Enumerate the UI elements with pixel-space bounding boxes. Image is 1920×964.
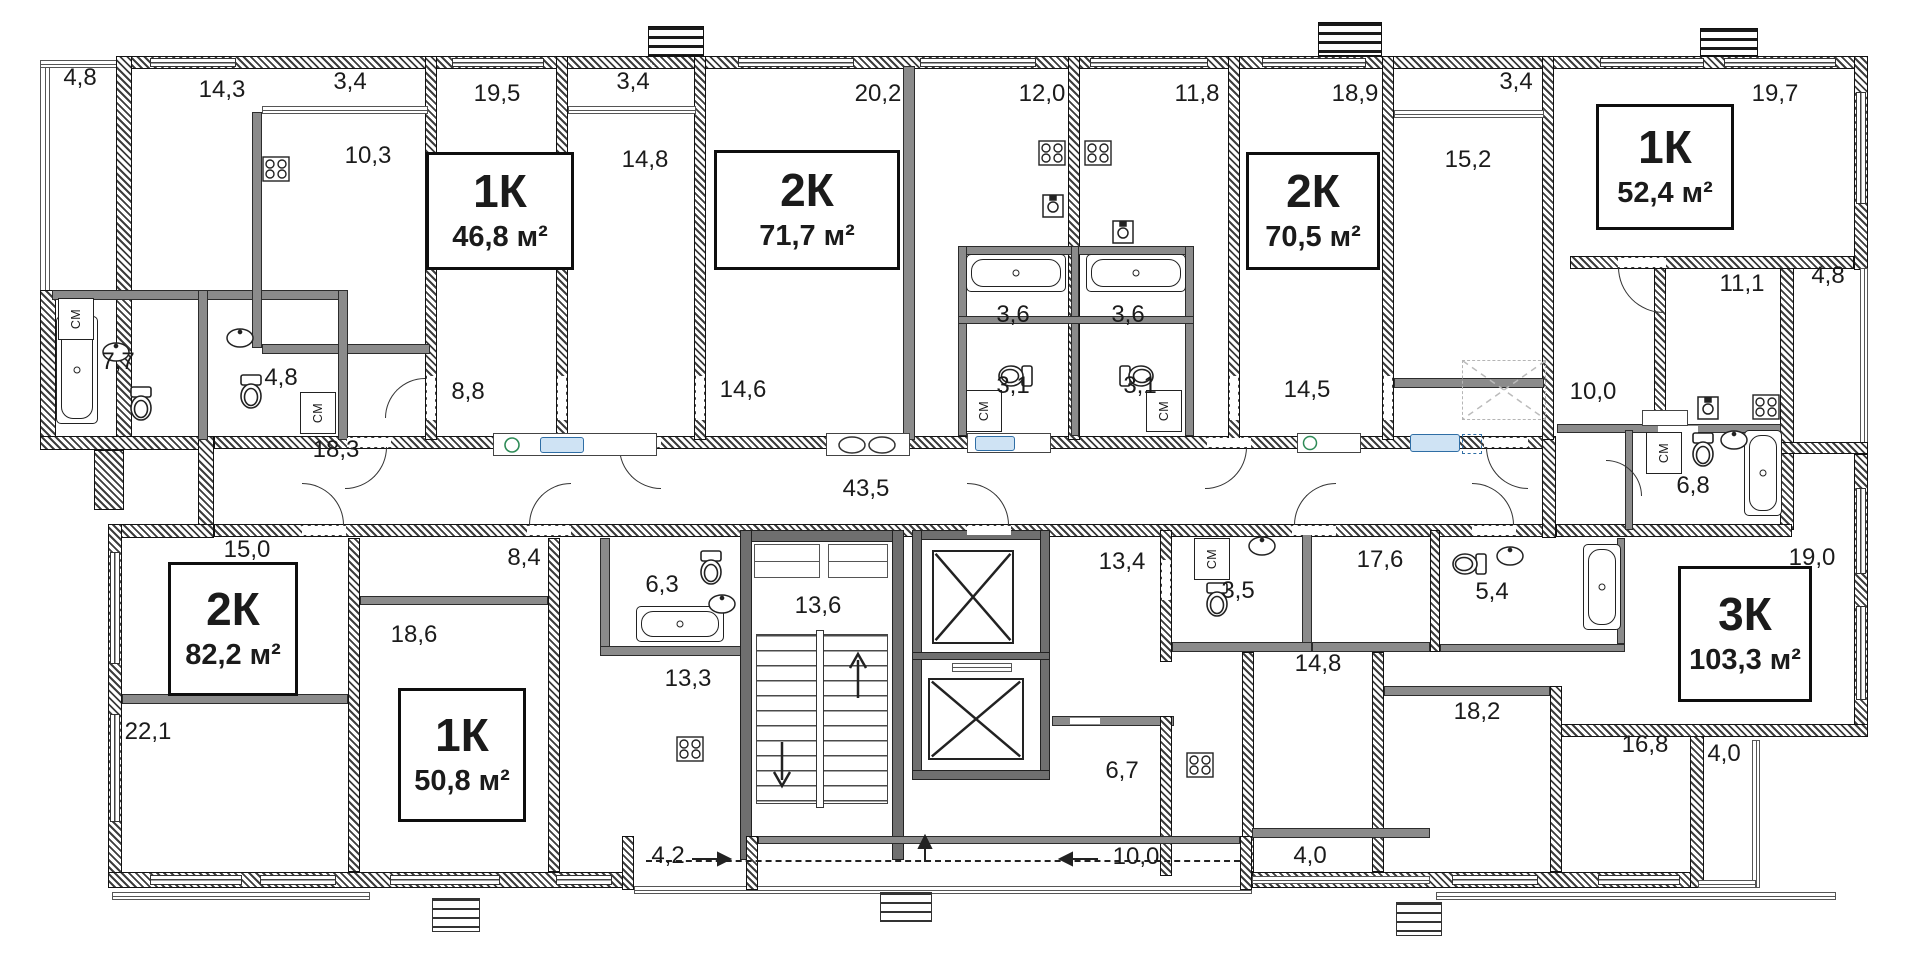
- wall: [1252, 828, 1430, 838]
- door-arc: [1606, 460, 1642, 496]
- sink-icon: [1720, 430, 1748, 450]
- room-area-label: 4,8: [1811, 262, 1844, 290]
- stove-icon: [1186, 752, 1214, 778]
- room-area-label: 13,4: [1099, 548, 1146, 576]
- wall: [198, 290, 208, 440]
- door-arc: [1294, 483, 1336, 525]
- apartment-type: 3К: [1718, 591, 1772, 637]
- door-arc: [1205, 447, 1247, 489]
- wall: [1430, 530, 1440, 652]
- window: [1598, 875, 1680, 885]
- apartment-label: 2К 82,2 м²: [168, 562, 298, 696]
- terrace-railing: [1436, 892, 1836, 900]
- door-arc: [529, 483, 571, 525]
- apartment-type: 1К: [435, 712, 489, 758]
- wall: [1440, 644, 1625, 652]
- balcony-railing: [1752, 740, 1760, 888]
- apartment-label: 2К 71,7 м²: [714, 150, 900, 270]
- kitchen-sink-icon: [1410, 434, 1460, 452]
- stair-closet: [828, 544, 888, 578]
- wall: [1372, 652, 1384, 872]
- loggia-railing: [1394, 110, 1544, 118]
- window: [110, 714, 120, 822]
- washing-machine-box: СМ: [300, 392, 336, 434]
- wall: [1780, 268, 1794, 530]
- room-area-label: 18,2: [1454, 698, 1501, 726]
- room-area-label: 14,5: [1284, 376, 1331, 404]
- sink-icon: [1042, 194, 1064, 218]
- corridor-wall: [1556, 524, 1792, 537]
- room-area-label: 4,8: [63, 64, 96, 92]
- stair-arrow-icon: [846, 650, 870, 700]
- window: [1856, 488, 1866, 574]
- window: [390, 875, 500, 885]
- window: [1262, 58, 1366, 67]
- window: [920, 58, 1036, 67]
- room-area-label: 3,6: [1111, 301, 1144, 329]
- wall: [758, 836, 1240, 844]
- room-area-label: 6,3: [645, 571, 678, 599]
- wall: [1160, 716, 1172, 876]
- room-area-label: 10,0: [1570, 378, 1617, 406]
- balcony-railing: [1860, 268, 1868, 444]
- room-area-label: 4,0: [1293, 842, 1326, 870]
- room-area-label: 14,3: [199, 76, 246, 104]
- apartment-area: 71,7 м²: [759, 220, 855, 253]
- room-area-label: 13,3: [665, 665, 712, 693]
- toilet-icon: [1451, 551, 1487, 577]
- door-arc: [302, 483, 344, 525]
- door-arc: [1618, 267, 1664, 313]
- bathtub-icon: [1583, 544, 1621, 630]
- room-area-label: 3,5: [1221, 577, 1254, 605]
- wall: [1240, 836, 1252, 890]
- kitchen-counter: [1642, 410, 1688, 426]
- room-area-label: 10,0: [1113, 843, 1160, 871]
- entry-arrow-icon: [690, 850, 734, 868]
- wall: [958, 316, 1194, 324]
- toilet-icon: [1690, 432, 1716, 468]
- apartment-label: 3К 103,3 м²: [1678, 566, 1812, 702]
- wall: [198, 436, 214, 538]
- chute: [94, 450, 124, 510]
- window: [1090, 58, 1208, 67]
- apartment-area: 52,4 м²: [1617, 177, 1713, 210]
- door-opening: [967, 526, 1011, 535]
- washing-machine-box: СМ: [1646, 432, 1682, 474]
- kitchen-sink-icon: [540, 437, 584, 453]
- elevator-panel: [952, 663, 1012, 672]
- door-opening: [1484, 438, 1528, 447]
- door-opening: [527, 526, 571, 535]
- window: [1600, 58, 1704, 67]
- room-area-label: 15,2: [1445, 146, 1492, 174]
- wall: [348, 538, 360, 872]
- room-area-label: 17,6: [1357, 546, 1404, 574]
- wall: [40, 436, 214, 450]
- loggia-railing: [568, 106, 696, 114]
- window: [150, 58, 236, 67]
- stove-icon: [262, 156, 290, 182]
- porch-edge: [634, 886, 1252, 894]
- bathtub-icon: [1744, 430, 1782, 516]
- room-area-label: 3,1: [996, 372, 1029, 400]
- door-arc: [1472, 483, 1514, 525]
- door-arc: [967, 483, 1009, 525]
- wall: [1071, 246, 1079, 436]
- room-area-label: 6,8: [1676, 472, 1709, 500]
- vent-shaft: [1700, 28, 1758, 56]
- toilet-icon: [698, 550, 724, 586]
- corridor-wall: [1542, 436, 1556, 538]
- washer-label: СМ: [1657, 443, 1671, 463]
- stair-wall: [740, 530, 904, 542]
- elevator-cab: [932, 550, 1014, 644]
- sink-icon: [708, 594, 736, 614]
- elevator-shaft-wall: [912, 652, 1050, 660]
- kitchen-sink-icon: [975, 436, 1015, 451]
- window: [1856, 606, 1866, 700]
- room-area-label: 18,9: [1332, 80, 1379, 108]
- room-area-label: 3,4: [1499, 68, 1532, 96]
- room-area-label: 22,1: [125, 718, 172, 746]
- washer-label: СМ: [311, 403, 325, 423]
- room-area-label: 10,3: [345, 142, 392, 170]
- wall: [338, 290, 348, 440]
- door-arc: [1486, 447, 1528, 489]
- room-area-label: 13,6: [795, 592, 842, 620]
- elevator-shaft-wall: [912, 770, 1050, 780]
- washer-label: СМ: [977, 401, 991, 421]
- door-opening: [1472, 526, 1516, 535]
- room-area-label: 14,8: [622, 146, 669, 174]
- apartment-area: 46,8 м²: [452, 221, 548, 254]
- room-area-label: 15,0: [224, 536, 271, 564]
- wall: [600, 646, 748, 656]
- wall: [1302, 530, 1312, 652]
- wall: [1780, 442, 1868, 454]
- wall: [548, 538, 560, 872]
- room-area-label: 8,8: [451, 378, 484, 406]
- room-area-label: 14,8: [1295, 650, 1342, 678]
- window: [1856, 92, 1866, 204]
- floor-plan: СМ СМ СМ СМ СМ СМ 4,8 14,3 3,4 19,5 3,4 …: [0, 0, 1920, 964]
- room-area-label: 12,0: [1019, 80, 1066, 108]
- door-opening: [1384, 376, 1392, 420]
- window: [260, 875, 336, 885]
- room-area-label: 43,5: [843, 475, 890, 503]
- double-sink-icon: [836, 436, 898, 454]
- apartment-label: 2К 70,5 м²: [1246, 152, 1380, 270]
- door-arc: [385, 378, 425, 418]
- wall: [600, 538, 610, 656]
- loggia-railing: [1252, 876, 1430, 884]
- apartment-label: 1К 50,8 м²: [398, 688, 526, 822]
- wall: [1185, 246, 1194, 436]
- apartment-area: 50,8 м²: [414, 765, 510, 798]
- stove-icon: [1084, 140, 1112, 166]
- stair-wall: [892, 530, 904, 860]
- washing-machine-box: СМ: [1194, 538, 1230, 580]
- apartment-area: 82,2 м²: [185, 639, 281, 672]
- apartment-area: 103,3 м²: [1689, 644, 1801, 677]
- washer-label: СМ: [1157, 401, 1171, 421]
- window: [738, 58, 854, 67]
- vent-shaft: [648, 26, 704, 56]
- toilet-icon: [128, 386, 154, 422]
- apartment-type: 2К: [206, 586, 260, 632]
- stair-stringer: [816, 630, 824, 808]
- vent-shaft: [1318, 22, 1382, 56]
- room-area-label: 4,0: [1707, 740, 1740, 768]
- apartment-label: 1К 52,4 м²: [1596, 104, 1734, 230]
- room-area-label: 4,2: [651, 842, 684, 870]
- door-opening: [1207, 438, 1251, 447]
- wall: [116, 56, 132, 442]
- room-area-label: 19,7: [1752, 80, 1799, 108]
- stove-icon: [1752, 394, 1780, 420]
- wall: [108, 524, 214, 538]
- apartment-type: 2К: [780, 167, 834, 213]
- door-opening: [427, 376, 435, 420]
- wall: [1556, 724, 1868, 737]
- door-opening: [1162, 560, 1170, 600]
- room-area-label: 8,4: [507, 544, 540, 572]
- apartment-type: 2К: [1286, 168, 1340, 214]
- room-area-label: 7,7: [101, 348, 134, 376]
- wardrobe-dashed: [1462, 360, 1546, 420]
- wall: [1384, 686, 1550, 696]
- kitchen-sink-icon: [503, 436, 521, 454]
- room-area-label: 18,3: [313, 436, 360, 464]
- window: [1452, 875, 1538, 885]
- door-opening: [302, 526, 346, 535]
- room-area-label: 5,4: [1475, 578, 1508, 606]
- bathtub-icon: [966, 254, 1066, 292]
- apartment-label: 1К 46,8 м²: [426, 152, 574, 270]
- window: [110, 552, 120, 664]
- wall: [622, 836, 634, 890]
- stove-icon: [676, 736, 704, 762]
- stair-closet: [754, 544, 820, 578]
- room-area-label: 19,5: [474, 80, 521, 108]
- room-area-label: 3,1: [1123, 372, 1156, 400]
- toilet-icon: [238, 374, 264, 410]
- window: [452, 58, 544, 67]
- entry-arrow-icon: [916, 834, 934, 864]
- entrance-steps: [880, 892, 932, 922]
- room-area-label: 14,6: [720, 376, 767, 404]
- washer-label: СМ: [1205, 549, 1219, 569]
- wall: [360, 596, 548, 605]
- kitchen-sink-icon: [1302, 435, 1318, 451]
- washing-machine-box: СМ: [58, 298, 94, 340]
- door-opening: [696, 376, 704, 420]
- stair-wall: [740, 530, 752, 860]
- loggia-railing: [262, 106, 428, 114]
- wall: [1690, 736, 1704, 888]
- stove-icon: [1038, 140, 1066, 166]
- door-opening: [1230, 376, 1238, 420]
- entrance-steps: [432, 898, 480, 932]
- sink-icon: [1496, 546, 1524, 566]
- room-area-label: 11,8: [1175, 80, 1220, 108]
- sink-icon: [1697, 396, 1719, 420]
- apartment-type: 1К: [1638, 124, 1692, 170]
- elevator-cab: [928, 678, 1024, 760]
- balcony-railing: [1698, 880, 1756, 888]
- door-opening: [1292, 526, 1336, 535]
- sink-icon: [1112, 220, 1134, 244]
- room-area-label: 11,1: [1720, 270, 1765, 298]
- wall: [1172, 642, 1312, 652]
- sink-icon: [1248, 536, 1276, 556]
- room-area-label: 18,6: [391, 621, 438, 649]
- room-area-label: 3,6: [996, 301, 1029, 329]
- window: [150, 875, 242, 885]
- stair-arrow-icon: [770, 740, 794, 790]
- apartment-type: 1К: [473, 168, 527, 214]
- balcony-railing: [40, 60, 50, 296]
- room-area-label: 16,8: [1622, 731, 1669, 759]
- window: [1724, 58, 1836, 67]
- entrance-steps: [1396, 902, 1442, 936]
- door-opening: [558, 376, 566, 420]
- door-opening: [1070, 718, 1100, 724]
- wall: [746, 836, 758, 890]
- room-area-label: 3,4: [616, 68, 649, 96]
- appliance-dashed: [1462, 434, 1482, 454]
- washer-label: СМ: [69, 309, 83, 329]
- room-area-label: 4,8: [264, 364, 297, 392]
- sink-icon: [226, 328, 254, 348]
- wall: [903, 66, 915, 440]
- terrace-railing: [112, 892, 370, 900]
- apartment-area: 70,5 м²: [1265, 221, 1361, 254]
- window: [556, 875, 612, 885]
- wall: [1550, 686, 1562, 872]
- room-area-label: 6,7: [1105, 757, 1138, 785]
- wall: [252, 112, 262, 348]
- room-area-label: 20,2: [855, 80, 902, 108]
- bathtub-icon: [1086, 254, 1186, 292]
- entry-arrow-icon: [1056, 850, 1100, 868]
- wall: [40, 290, 56, 448]
- door-opening: [1618, 258, 1666, 267]
- room-area-label: 3,4: [333, 68, 366, 96]
